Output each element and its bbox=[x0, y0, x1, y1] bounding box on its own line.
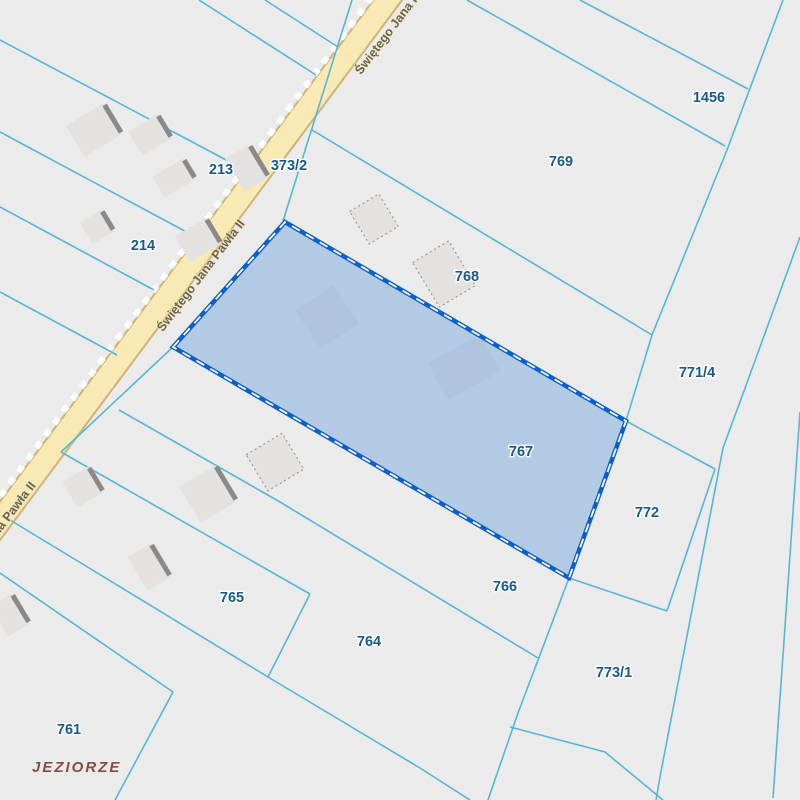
parcel-label-771/4[interactable]: 771/4 bbox=[679, 365, 715, 381]
parcel-label-1456[interactable]: 1456 bbox=[693, 90, 725, 106]
parcel-label-373/2[interactable]: 373/2 bbox=[271, 158, 307, 174]
cadastral-map-svg[interactable]: Świętego Jana Pawła IIŚwiętego Jana Pawł… bbox=[0, 0, 800, 800]
parcel-label-769[interactable]: 769 bbox=[549, 154, 573, 170]
parcel-label-772[interactable]: 772 bbox=[635, 505, 659, 521]
parcel-label-764[interactable]: 764 bbox=[357, 634, 381, 650]
parcel-label-767[interactable]: 767 bbox=[509, 444, 533, 460]
parcel-label-765[interactable]: 765 bbox=[220, 590, 244, 606]
parcel-label-768[interactable]: 768 bbox=[455, 269, 479, 285]
cadastral-map[interactable]: Świętego Jana Pawła IIŚwiętego Jana Pawł… bbox=[0, 0, 800, 800]
parcel-label-214[interactable]: 214 bbox=[131, 238, 155, 254]
parcel-label-773/1[interactable]: 773/1 bbox=[596, 665, 632, 681]
parcel-label-213[interactable]: 213 bbox=[209, 162, 233, 178]
place-name-label: JEZIORZE bbox=[32, 759, 121, 776]
parcel-label-766[interactable]: 766 bbox=[493, 579, 517, 595]
parcel-label-761[interactable]: 761 bbox=[57, 722, 81, 738]
